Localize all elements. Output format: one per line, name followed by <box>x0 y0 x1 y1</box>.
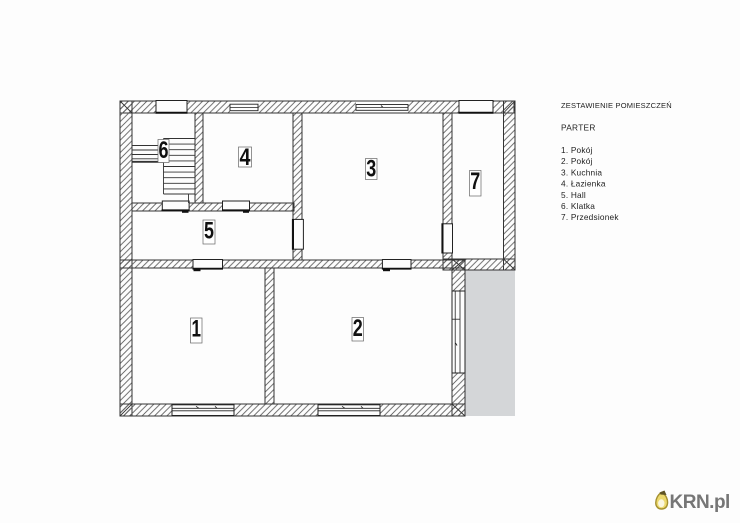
svg-text:6. Klatka: 6. Klatka <box>561 201 595 211</box>
svg-text:3. Kuchnia: 3. Kuchnia <box>561 167 602 177</box>
svg-text:5: 5 <box>204 217 214 244</box>
svg-text:2. Pokój: 2. Pokój <box>561 156 593 166</box>
svg-text:4: 4 <box>240 144 252 171</box>
svg-text:6: 6 <box>159 137 169 164</box>
svg-text:3: 3 <box>366 156 376 183</box>
svg-text:2: 2 <box>353 315 363 342</box>
svg-text:1: 1 <box>192 315 202 342</box>
svg-text:KRN.pl: KRN.pl <box>670 492 730 513</box>
svg-text:ZESTAWIENIE POMIESZCZEŃ: ZESTAWIENIE POMIESZCZEŃ <box>561 101 672 110</box>
svg-text:5. Hall: 5. Hall <box>561 190 586 200</box>
svg-text:7: 7 <box>470 168 480 195</box>
svg-text:4. Łazienka: 4. Łazienka <box>561 179 606 189</box>
svg-text:PARTER: PARTER <box>561 123 596 133</box>
svg-text:1. Pokój: 1. Pokój <box>561 145 593 155</box>
svg-text:7. Przedsionek: 7. Przedsionek <box>561 212 619 222</box>
